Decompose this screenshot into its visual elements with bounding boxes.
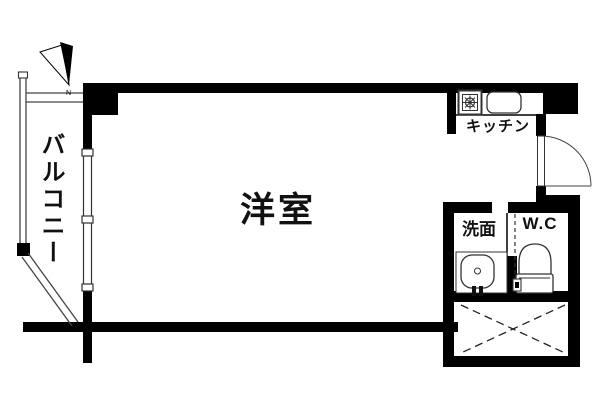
wall-corner-top-right [543, 83, 578, 114]
washbasin-faucet-right [479, 286, 483, 296]
entrance-door [538, 136, 592, 186]
stove-burner-rays [463, 96, 477, 110]
wall-sanitary-bottom [448, 356, 580, 367]
window-joint-top [82, 149, 93, 156]
room-label-balcony: バルコニー [33, 132, 68, 302]
toilet-flush-button [515, 282, 519, 288]
room-label-kitchen: キッチン [455, 115, 541, 136]
kitchen-counter [456, 91, 537, 116]
wall-door-lower-stub [536, 186, 546, 203]
stove-icon [459, 91, 482, 115]
room-label-washroom: 洗面 [456, 215, 502, 240]
washbasin-faucet-left [472, 286, 476, 296]
washbasin-drain [475, 268, 481, 274]
shaft-cross [461, 305, 565, 353]
wall-sanitary-left [443, 202, 454, 367]
washbasin-icon [456, 252, 507, 296]
railing-top-cap [19, 72, 28, 78]
kitchen-sink-icon [487, 92, 521, 113]
room-label-toilet: W.C [510, 214, 570, 234]
north-arrow-label: N [66, 90, 71, 97]
window-joint-middle [82, 216, 93, 223]
wall-bottom [23, 322, 458, 332]
window-joint-bottom [82, 284, 93, 291]
toilet-icon [513, 244, 553, 293]
door-swing-arc [541, 136, 591, 186]
window [82, 149, 93, 291]
door-leaf [538, 136, 545, 186]
wall-left-upper [83, 114, 92, 152]
room-label-main: 洋室 [203, 182, 353, 233]
floor-plan: N 洋室 バルコニー キッチン 洗面 W.C [0, 0, 600, 400]
north-arrow-icon: N [40, 42, 73, 97]
